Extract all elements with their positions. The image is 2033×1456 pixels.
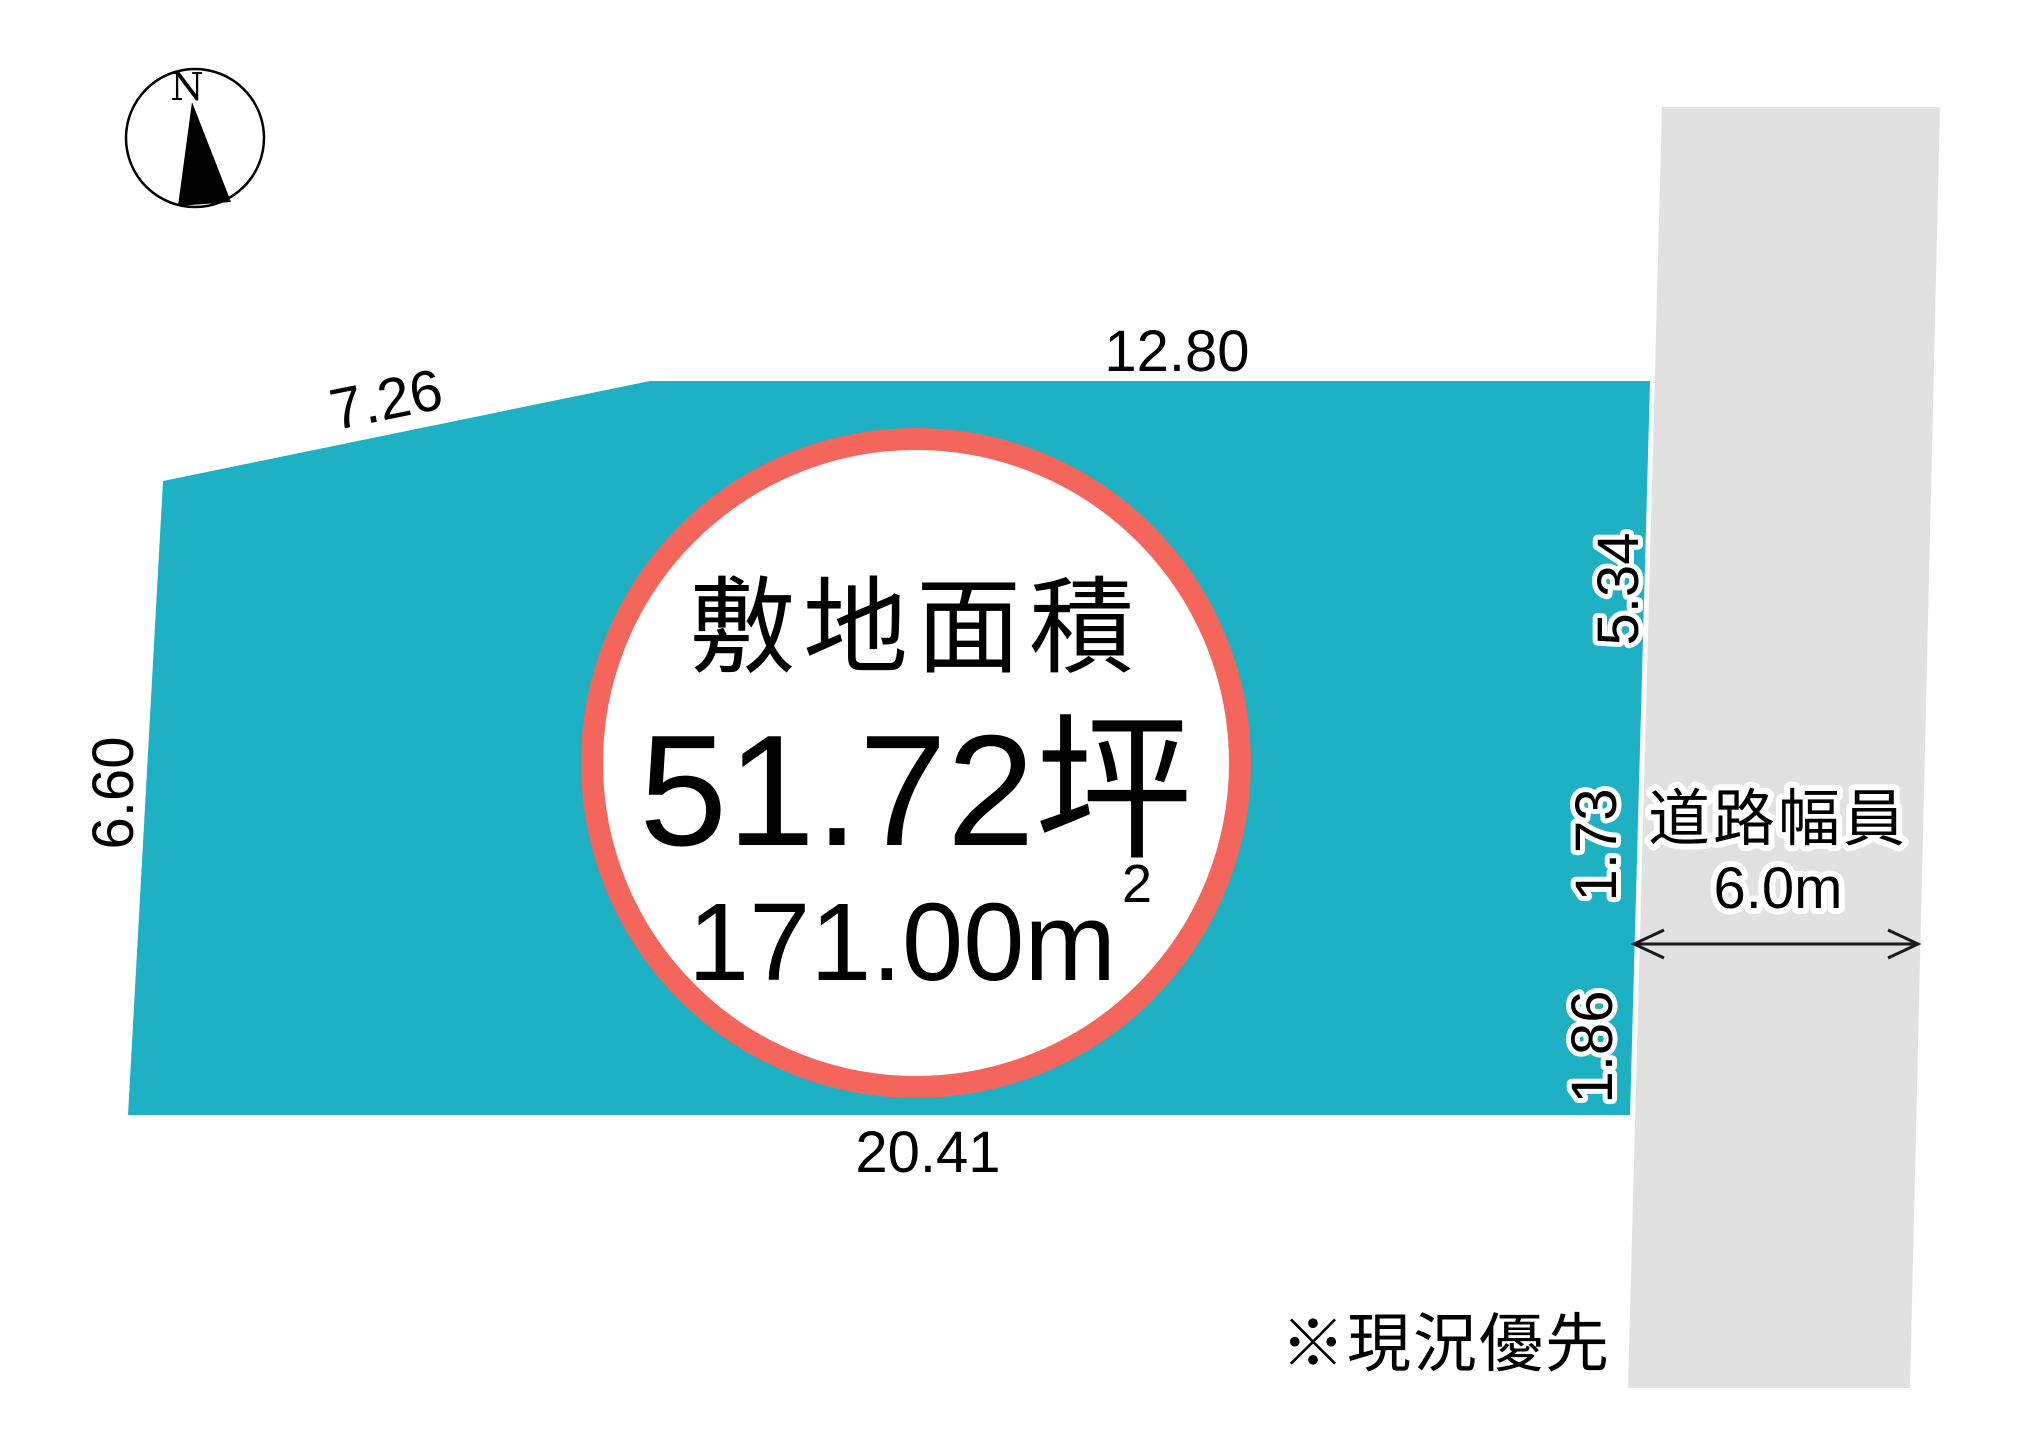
compass-north-label: N: [170, 65, 203, 109]
area-badge-sqm: 171.00m: [688, 881, 1116, 1004]
note-genkyo-yusen: ※現況優先: [1281, 1308, 1611, 1380]
land-plot-diagram: 敷地面積 51.72坪 171.00m 2 12.80 7.26 6.60 20…: [0, 0, 2033, 1456]
dimension-bottom: 20.41: [855, 1120, 1000, 1185]
dimension-right-lower: 1.86: [1560, 991, 1625, 1104]
road-label: 道路幅員: [1648, 785, 1908, 854]
compass: N: [126, 65, 264, 207]
dimension-left: 6.60: [81, 737, 146, 850]
dimension-top: 12.80: [1104, 319, 1249, 384]
dimension-right-middle: 1.73: [1564, 789, 1629, 902]
area-badge-sqm-superscript: 2: [1122, 854, 1152, 914]
area-badge-tsubo: 51.72坪: [639, 703, 1192, 879]
road-strip: [1628, 107, 1940, 1388]
road-width-value: 6.0m: [1714, 856, 1843, 921]
dimension-right-upper: 5.34: [1586, 533, 1651, 646]
area-badge-title: 敷地面積: [690, 570, 1142, 687]
